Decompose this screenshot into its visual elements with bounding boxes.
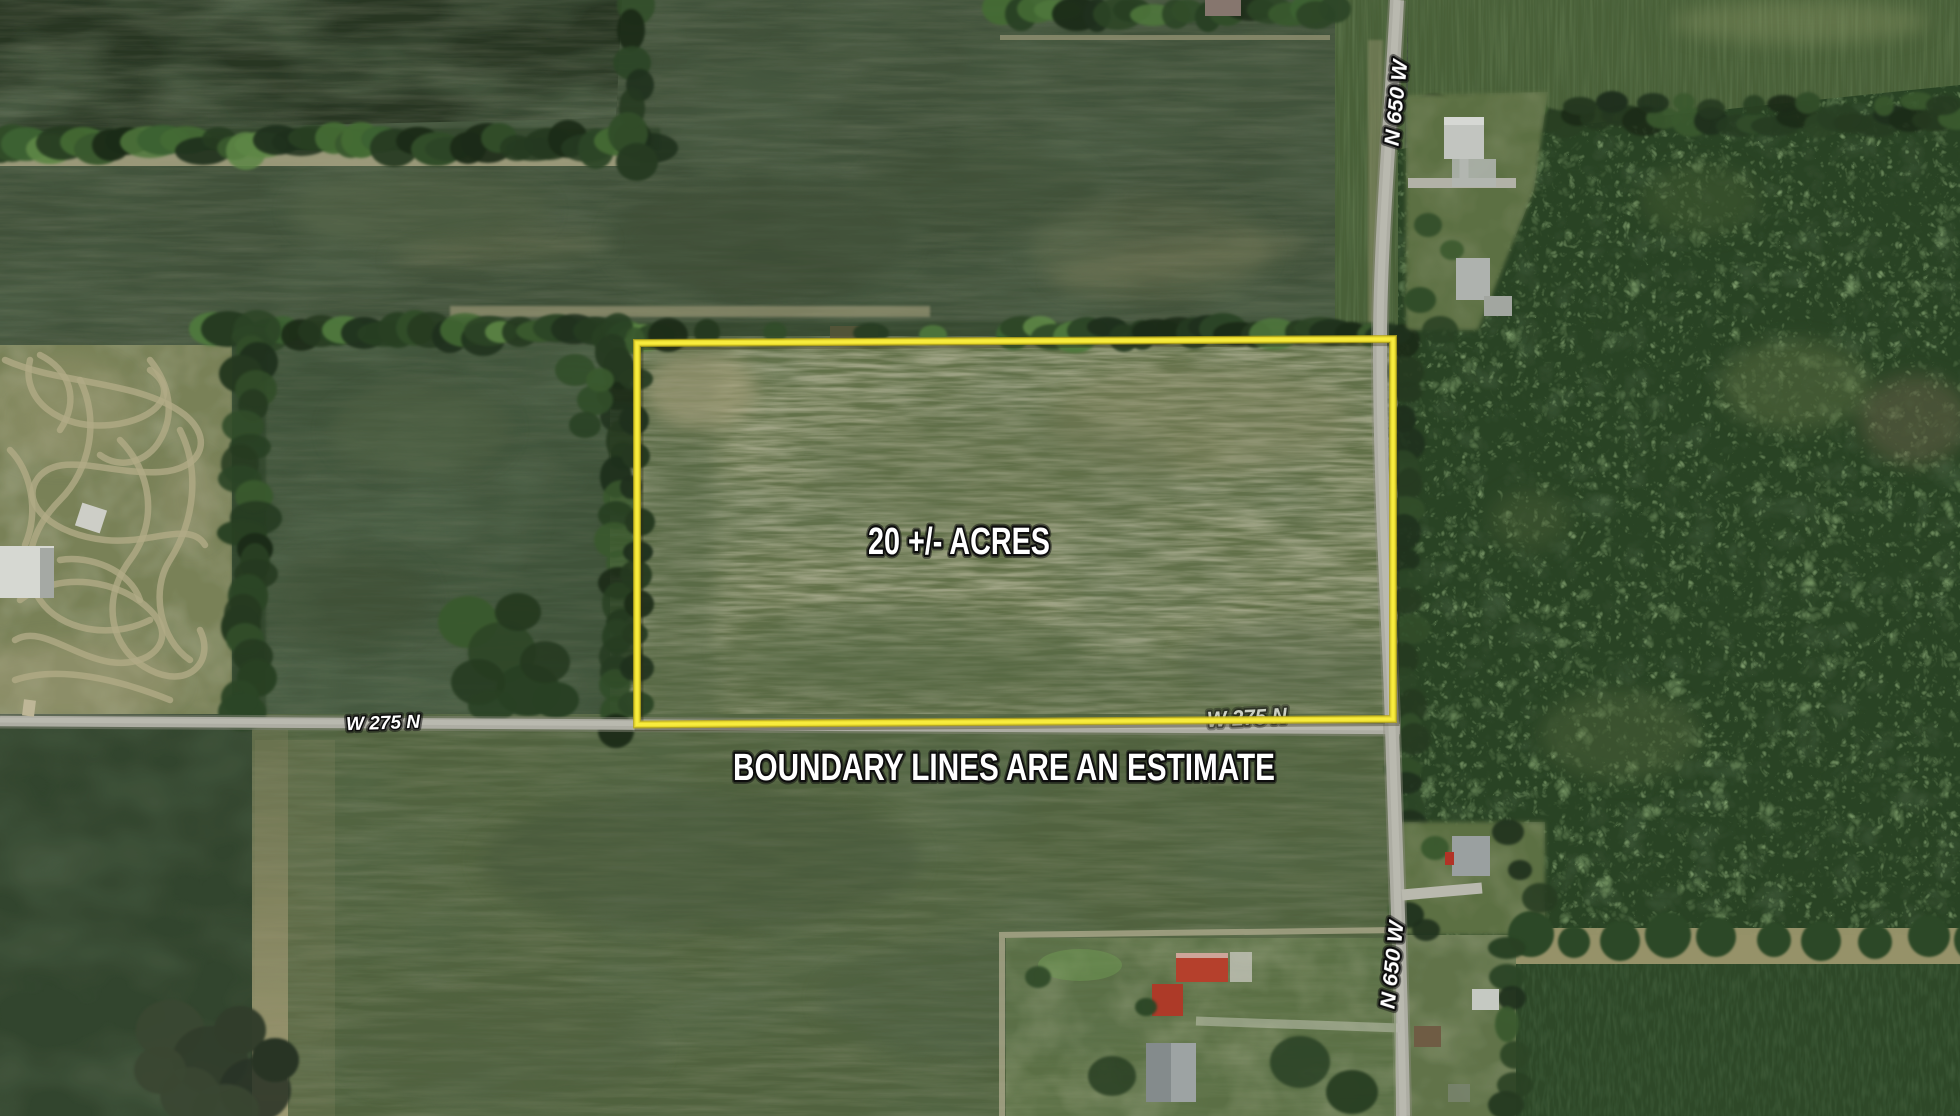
svg-text:20 +/- ACRES: 20 +/- ACRES: [868, 521, 1050, 563]
svg-text:W 275 N: W 275 N: [346, 712, 422, 736]
svg-text:BOUNDARY LINES ARE AN ESTIMATE: BOUNDARY LINES ARE AN ESTIMATE: [733, 747, 1275, 789]
